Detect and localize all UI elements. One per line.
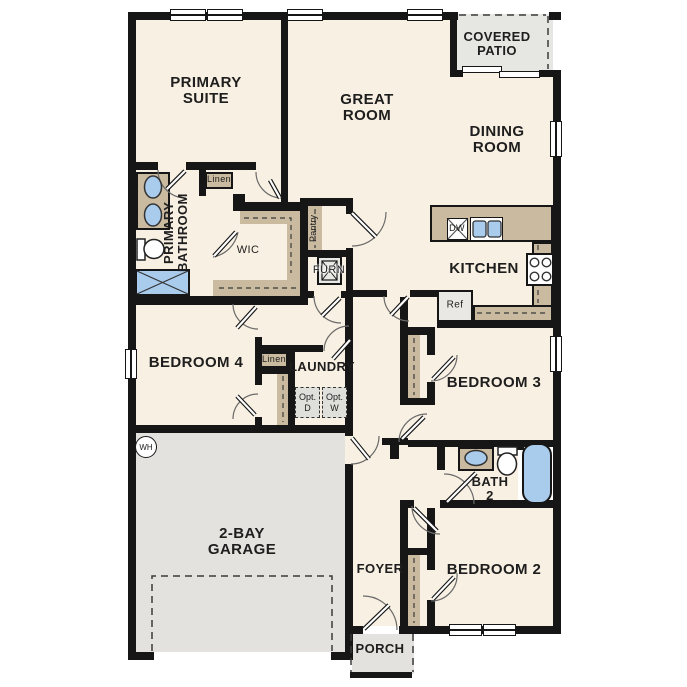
wall (345, 464, 353, 660)
wall (199, 170, 206, 196)
wall (353, 290, 387, 297)
room-label-dining-room: DINING ROOM (457, 124, 537, 156)
room-label-bedroom-3: BEDROOM 3 (447, 375, 541, 391)
wall (341, 291, 348, 298)
wall (400, 398, 435, 405)
label-furnace: FURN (313, 265, 345, 277)
window (483, 624, 516, 636)
wall (539, 70, 561, 77)
window (287, 9, 323, 21)
wall (549, 12, 561, 20)
room-label-foyer: FOYER (357, 562, 404, 576)
wall (128, 12, 136, 660)
wall (128, 652, 154, 660)
room-label-primary-suite: PRIMARY SUITE (156, 75, 256, 107)
opt-washer-label: Opt. W (323, 392, 346, 413)
wall (408, 548, 428, 555)
wall (427, 508, 435, 570)
wall (346, 198, 353, 214)
room-label-laundry: LAUNDRY (289, 360, 355, 374)
optional-washer: Opt. W (322, 387, 347, 418)
label-linen-hall: Linen (262, 355, 286, 365)
wic-shelf-right (287, 211, 300, 280)
kitchen-counter-right (532, 242, 553, 308)
wall (408, 327, 428, 335)
optional-dryer: Opt. D (295, 387, 320, 418)
bedroom2-closet-shelf (408, 555, 420, 626)
sliding-door-panel (462, 66, 502, 73)
room-label-bath-2: BATH 2 (468, 475, 512, 503)
wall (186, 162, 256, 170)
room-label-covered-patio: COVERED PATIO (452, 30, 542, 58)
window (407, 9, 443, 21)
window (550, 121, 562, 157)
wall (408, 440, 561, 447)
bath2-vanity (458, 447, 494, 471)
wall (390, 445, 399, 459)
wall (437, 447, 445, 470)
wic-shelf-bottom (213, 280, 300, 296)
wall (400, 297, 408, 405)
wall (255, 296, 308, 305)
window (170, 9, 206, 21)
room-label-wic: WIC (237, 245, 260, 257)
room-label-great-room: GREAT ROOM (327, 92, 407, 124)
room-label-bedroom-2: BEDROOM 2 (447, 562, 541, 578)
label-pantry: Pantry (309, 206, 319, 250)
wall (427, 600, 435, 626)
room-label-porch: PORCH (356, 642, 405, 656)
wall (382, 438, 408, 445)
floor-plan: Opt. D Opt. W WH (0, 0, 687, 687)
wall (427, 327, 435, 355)
porch-step (350, 672, 412, 678)
wall (516, 440, 524, 450)
room-label-kitchen: KITCHEN (449, 261, 518, 277)
sliding-door-panel (499, 71, 540, 78)
label-dishwasher: DW (449, 224, 465, 234)
water-heater-label: WH (139, 443, 152, 452)
wall (255, 337, 262, 385)
window (125, 349, 137, 379)
opt-dryer-label: Opt. D (296, 392, 319, 413)
window (550, 336, 562, 372)
window (207, 9, 243, 21)
wall (281, 20, 288, 204)
wall (262, 368, 288, 374)
kitchen-sink-icon (470, 217, 503, 241)
label-linen-bath: Linen (207, 175, 231, 185)
room-label-garage: 2-BAY GARAGE (200, 526, 284, 558)
label-refrigerator: Ref (447, 301, 464, 312)
wall (128, 425, 353, 433)
bedroom3-closet-shelf (408, 335, 420, 398)
wall (300, 250, 348, 257)
wall (410, 290, 438, 297)
wall (128, 296, 255, 305)
water-heater-icon: WH (135, 436, 157, 458)
window (449, 624, 482, 636)
wall (136, 162, 158, 170)
wall (233, 202, 307, 211)
room-label-bedroom-4: BEDROOM 4 (149, 355, 243, 371)
room-label-primary-bathroom: PRIMARY BATHROOM (162, 174, 190, 292)
